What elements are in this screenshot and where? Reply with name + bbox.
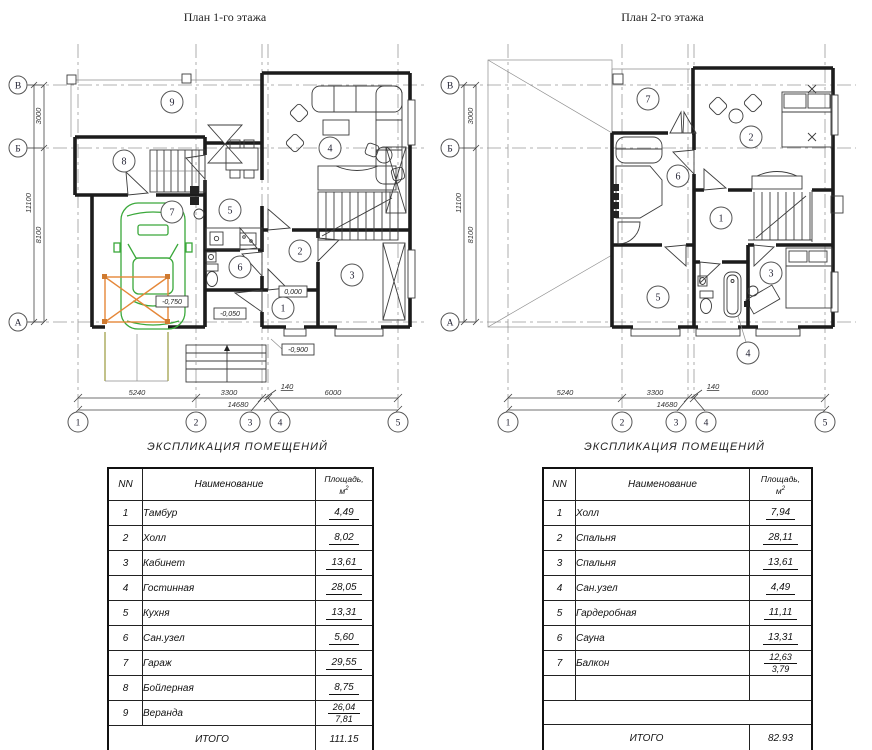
room-number: 3 xyxy=(769,269,774,280)
table2-caption: ЭКСПЛИКАЦИЯ ПОМЕЩЕНИЙ xyxy=(542,441,807,453)
row-name: Холл xyxy=(576,501,750,526)
table-row: 3Кабинет13,61 xyxy=(108,551,373,576)
room-number: 5 xyxy=(656,293,661,304)
dim-8100: 8100 xyxy=(34,226,43,244)
crossed-window-panel xyxy=(383,147,406,320)
row-name: Сауна xyxy=(576,626,750,651)
veranda-post xyxy=(182,74,191,83)
row-name: Бойлерная xyxy=(143,676,316,701)
row-area: 28,11 xyxy=(763,532,797,545)
room-number: 4 xyxy=(746,349,751,360)
floor-plan-2: 5240 3300 140 6000 14680 3000 8100 11100… xyxy=(441,44,856,432)
header-area: Площадь,м2 xyxy=(316,468,374,501)
row-name: Веранда xyxy=(143,701,316,726)
row-name: Гостинная xyxy=(143,576,316,601)
row-nn: 4 xyxy=(543,576,576,601)
dim-140: 140 xyxy=(707,382,720,391)
explication-table-floor1: NN Наименование Площадь,м2 1Тамбур4,49 2… xyxy=(107,467,374,750)
table1-caption: ЭКСПЛИКАЦИЯ ПОМЕЩЕНИЙ xyxy=(107,441,368,453)
table-row: 6Сан.узел5,60 xyxy=(108,626,373,651)
header-area-line1: Площадь, xyxy=(761,474,800,484)
elevation-ground: -0,900 xyxy=(288,347,308,354)
row-nn: 8 xyxy=(108,676,143,701)
explication-table-floor2: NN Наименование Площадь,м2 1Холл7,94 2Сп… xyxy=(542,467,813,750)
room-number: 2 xyxy=(749,133,754,144)
row-area: 8,75 xyxy=(329,682,358,695)
veranda-post xyxy=(67,75,76,84)
row-nn: 2 xyxy=(108,526,143,551)
row-nn: 3 xyxy=(108,551,143,576)
table-row: 7Гараж29,55 xyxy=(108,651,373,676)
table-empty-row xyxy=(543,676,812,701)
row-name: Кабинет xyxy=(143,551,316,576)
table-row: 1Тамбур4,49 xyxy=(108,501,373,526)
room-number: 7 xyxy=(646,95,651,106)
dim-3300: 3300 xyxy=(647,388,665,397)
elevation-entry: 0,000 xyxy=(284,289,302,296)
plan1-axis-bubbles: В Б А 1 2 3 4 5 xyxy=(9,76,408,432)
dim-3300: 3300 xyxy=(221,388,239,397)
total-label: ИТОГО xyxy=(108,726,316,750)
dim-6000: 6000 xyxy=(325,388,343,397)
header-area-sup: 2 xyxy=(345,486,348,492)
row-area: 13,31 xyxy=(326,607,361,620)
axis-number: 5 xyxy=(823,419,828,429)
row-area: 29,55 xyxy=(326,657,361,670)
row-nn: 6 xyxy=(108,626,143,651)
table-total-row: ИТОГО82.93 xyxy=(543,725,812,750)
header-name: Наименование xyxy=(143,468,316,501)
total-value: 82.93 xyxy=(750,725,813,750)
header-area-sup: 2 xyxy=(782,486,785,492)
dim-11100: 11100 xyxy=(454,192,463,213)
bedroom3-furniture xyxy=(744,248,832,314)
elevation-garage: -0,750 xyxy=(162,299,182,306)
table-row: 5Кухня13,31 xyxy=(108,601,373,626)
row-name: Гардеробная xyxy=(576,601,750,626)
balcony-post xyxy=(613,74,623,84)
dim-14680: 14680 xyxy=(657,400,679,409)
dim-8100: 8100 xyxy=(466,226,475,244)
room-number: 7 xyxy=(170,208,175,219)
floor-plan-1: -0,750 0,000 -0,050 -0,900 5240 3300 140… xyxy=(9,44,428,432)
plan2-room-numbers: 1 2 3 4 5 6 7 xyxy=(637,88,782,364)
row-area: 13,61 xyxy=(326,557,361,570)
row-name: Сан.узел xyxy=(576,576,750,601)
table-empty-band xyxy=(543,701,812,725)
row-nn: 2 xyxy=(543,526,576,551)
axis-letter: А xyxy=(447,319,454,329)
room-number: 2 xyxy=(298,247,303,258)
dim-6000: 6000 xyxy=(752,388,770,397)
row-area: 13,61 xyxy=(763,557,798,570)
row-nn: 1 xyxy=(108,501,143,526)
row-area2: 3,79 xyxy=(772,664,790,674)
total-value: 111.15 xyxy=(316,726,374,750)
row-nn: 9 xyxy=(108,701,143,726)
dim-5240: 5240 xyxy=(129,388,147,397)
table-total-row: ИТОГО111.15 xyxy=(108,726,373,750)
dim-3000: 3000 xyxy=(34,107,43,125)
row-nn: 7 xyxy=(108,651,143,676)
room-number: 6 xyxy=(676,172,681,183)
table-row: 9Веранда26,047,81 xyxy=(108,701,373,726)
header-area: Площадь,м2 xyxy=(750,468,813,501)
row-area: 8,02 xyxy=(329,532,358,545)
car-top-view xyxy=(114,203,192,329)
row-area: 13,31 xyxy=(763,632,798,645)
row-name: Холл xyxy=(143,526,316,551)
floor-plans-drawing: -0,750 0,000 -0,050 -0,900 5240 3300 140… xyxy=(0,0,872,440)
room-number: 9 xyxy=(170,98,175,109)
row-nn: 6 xyxy=(543,626,576,651)
row-area: 4,49 xyxy=(329,507,358,520)
porch-steps xyxy=(186,345,266,382)
header-nn: NN xyxy=(108,468,143,501)
table-row: 1Холл7,94 xyxy=(543,501,812,526)
table-row: 4Сан.узел4,49 xyxy=(543,576,812,601)
axis-letter: В xyxy=(447,82,453,92)
axis-letter: Б xyxy=(447,145,452,155)
row-area: 4,49 xyxy=(766,582,795,595)
room-number: 4 xyxy=(328,144,333,155)
table-row: 5Гардеробная11,11 xyxy=(543,601,812,626)
row-area: 5,60 xyxy=(329,632,358,645)
table-row: 2Холл8,02 xyxy=(108,526,373,551)
axis-number: 2 xyxy=(194,419,199,429)
row-name: Кухня xyxy=(143,601,316,626)
row-name: Гараж xyxy=(143,651,316,676)
plan2-stairs xyxy=(748,172,812,243)
axis-number: 4 xyxy=(278,419,283,429)
table-row: 2Спальня28,11 xyxy=(543,526,812,551)
row-name: Сан.узел xyxy=(143,626,316,651)
row-area: 12,63 xyxy=(764,652,797,664)
table-row: 6Сауна13,31 xyxy=(543,626,812,651)
blueprint-page: { "plan1": { "title": "План 1-го этажа",… xyxy=(0,0,872,750)
axis-number: 3 xyxy=(674,419,679,429)
elevation-porch: -0,050 xyxy=(220,311,240,318)
row-name: Спальня xyxy=(576,551,750,576)
dim-5240: 5240 xyxy=(557,388,575,397)
header-area-line1: Площадь, xyxy=(324,474,363,484)
table-row: 8Бойлерная8,75 xyxy=(108,676,373,701)
bedroom2-furniture xyxy=(708,85,832,147)
total-label: ИТОГО xyxy=(543,725,750,750)
wc-fixtures xyxy=(206,252,218,287)
row-area: 28,05 xyxy=(326,582,361,595)
row-area2: 7,81 xyxy=(335,714,353,724)
row-name: Балкон xyxy=(576,651,750,676)
row-area: 26,04 xyxy=(328,702,361,714)
axis-number: 3 xyxy=(248,419,253,429)
header-nn: NN xyxy=(543,468,576,501)
table-header-row: NN Наименование Площадь,м2 xyxy=(543,468,812,501)
axis-number: 2 xyxy=(620,419,625,429)
plan1-dimensions: 5240 3300 140 6000 14680 3000 8100 11100 xyxy=(24,82,402,414)
axis-number: 1 xyxy=(76,419,81,429)
table-row: 7Балкон12,633,79 xyxy=(543,651,812,676)
sauna-benches xyxy=(612,137,662,244)
row-nn: 4 xyxy=(108,576,143,601)
room-number: 1 xyxy=(719,214,724,225)
room-number: 3 xyxy=(350,271,355,282)
row-nn: 5 xyxy=(108,601,143,626)
axis-letter: Б xyxy=(15,145,20,155)
axis-number: 1 xyxy=(506,419,511,429)
row-area: 7,94 xyxy=(766,507,795,520)
axis-letter: А xyxy=(15,319,22,329)
room-number: 8 xyxy=(122,157,127,168)
table-row: 4Гостинная28,05 xyxy=(108,576,373,601)
table-header-row: NN Наименование Площадь,м2 xyxy=(108,468,373,501)
dim-14680: 14680 xyxy=(228,400,250,409)
table-row: 3Спальня13,61 xyxy=(543,551,812,576)
axis-letter: В xyxy=(15,82,21,92)
row-name: Спальня xyxy=(576,526,750,551)
row-nn: 7 xyxy=(543,651,576,676)
dim-140: 140 xyxy=(281,382,294,391)
header-name: Наименование xyxy=(576,468,750,501)
row-nn: 1 xyxy=(543,501,576,526)
row-name: Тамбур xyxy=(143,501,316,526)
plan1-walls xyxy=(75,73,410,327)
dim-3000: 3000 xyxy=(466,107,475,125)
row-nn: 5 xyxy=(543,601,576,626)
room-number: 1 xyxy=(281,304,286,315)
dim-11100: 11100 xyxy=(24,192,33,213)
axis-number: 5 xyxy=(396,419,401,429)
plan1-axis-grid xyxy=(28,44,428,411)
row-area: 11,11 xyxy=(764,607,798,620)
plan2-axis-bubbles: В Б А 1 2 3 4 5 xyxy=(441,76,835,432)
room-number: 6 xyxy=(238,263,243,274)
plan1-window-sills xyxy=(284,100,415,336)
axis-number: 4 xyxy=(704,419,709,429)
roof-slope xyxy=(488,60,612,327)
row-nn: 3 xyxy=(543,551,576,576)
driveway xyxy=(105,332,168,381)
room-number: 5 xyxy=(228,206,233,217)
